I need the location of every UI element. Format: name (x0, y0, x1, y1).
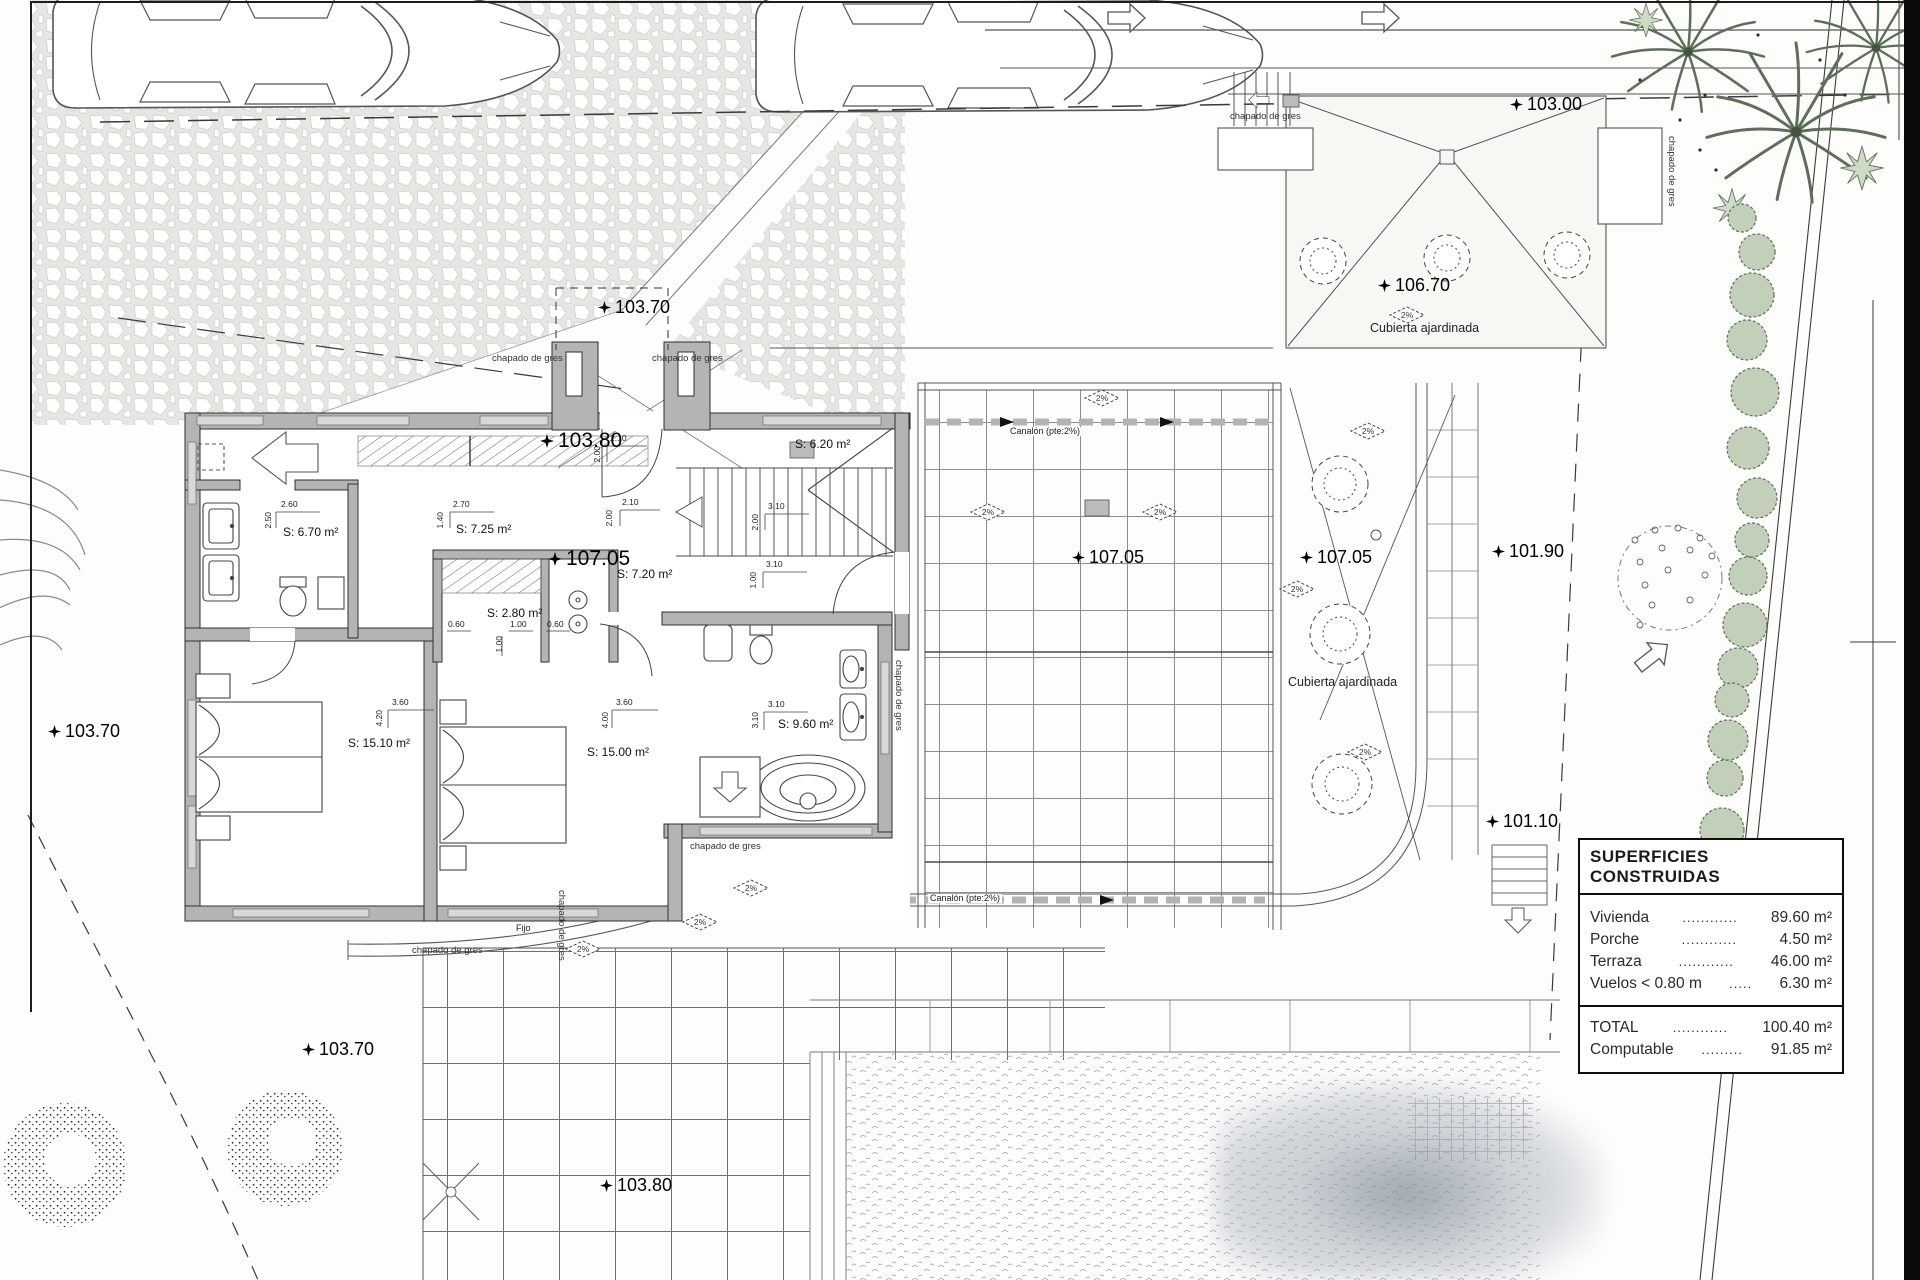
dimension-label: 2.50 (264, 512, 273, 529)
side-structure (1598, 128, 1662, 224)
dimension-label: 0.60 (547, 620, 564, 629)
dimension-label: 2.60 (281, 500, 298, 509)
dimension-label: 1.00 (749, 572, 758, 589)
material-note: chapado de gres (492, 354, 563, 364)
elevation-marker: 106.70 (1378, 276, 1450, 294)
dimension-label: 3.10 (768, 502, 785, 511)
dimension-label: 1.00 (510, 620, 527, 629)
table-row: Vivienda ............ 89.60 m² (1590, 909, 1832, 927)
pool-reflection-blur-2 (1300, 1130, 1520, 1260)
survey-point-icon (598, 301, 611, 314)
dimension-label: 3.60 (616, 698, 633, 707)
pool-steps (810, 1052, 846, 1280)
elevation-marker: 107.05 (1300, 548, 1372, 566)
survey-point-icon (1300, 551, 1313, 564)
slope-arrow: 2% (682, 913, 718, 931)
survey-point-icon (1072, 551, 1085, 564)
survey-point-icon (1492, 545, 1505, 558)
toilet-main (750, 625, 772, 664)
elevation-marker: 107.05 (548, 548, 630, 569)
toilet-small (280, 577, 306, 616)
elevation-marker: 101.90 (1492, 542, 1564, 560)
elevation-marker: 103.70 (598, 298, 670, 316)
dimension-label: 2.00 (593, 446, 602, 463)
dimension-label: 3.60 (392, 698, 409, 707)
material-note: chapado de gres (412, 946, 483, 956)
room-area-label: S: 6.20 m² (795, 438, 850, 450)
floor-plan-sheet: 103.00 103.70 103.70 103.70 103.80 103.8… (0, 0, 1920, 1280)
survey-point-icon (600, 1179, 613, 1192)
dimension-label: 3.10 (768, 700, 785, 709)
side-roof-garden (1290, 383, 1478, 906)
bidet (704, 625, 732, 661)
table-row: Vuelos < 0.80 m ..... 6.30 m² (1590, 975, 1832, 993)
material-note: chapado de gres (1667, 136, 1677, 207)
slope-arrow: 2% (733, 879, 769, 897)
left-palm (0, 470, 85, 650)
material-note: chapado de gres (690, 842, 761, 852)
room-area-label: S: 2.80 m² (487, 607, 542, 619)
material-note: chapado de gres (1230, 112, 1301, 122)
table-row: Computable ......... 91.85 m² (1590, 1041, 1832, 1059)
room-area-label: S: 15.00 m² (587, 746, 649, 758)
gutter-note: Canalón (pte:2%) (928, 894, 1002, 903)
bathtub (751, 755, 865, 821)
roof-garden-note: Cubierta ajardinada (1288, 676, 1397, 689)
room-area-label: S: 9.60 m² (778, 718, 833, 730)
shower (700, 757, 760, 817)
survey-point-icon (548, 552, 562, 566)
room-area-label: S: 6.70 m² (283, 526, 338, 538)
room-area-label: S: 7.20 m² (617, 568, 672, 580)
dimension-label: 1.00 (495, 636, 504, 653)
slope-arrow: 2% (1350, 422, 1386, 440)
material-note: chapado de gres (894, 660, 904, 731)
slope-arrow: 2% (1389, 306, 1425, 324)
dimension-label: 2.00 (605, 510, 614, 527)
elevation-marker: 107.05 (1072, 548, 1144, 566)
areas-table-totals: TOTAL ............ 100.40 m² Computable … (1580, 1007, 1842, 1072)
dimension-label: 3.10 (751, 712, 760, 729)
dimension-label: 3.10 (766, 560, 783, 569)
dimension-label: 4.20 (375, 710, 384, 727)
dimension-label: 2.00 (751, 514, 760, 531)
survey-point-icon (302, 1043, 315, 1056)
material-note: chapado de gres (652, 354, 723, 364)
dimension-label: 2.10 (622, 498, 639, 507)
slope-arrow: 2% (1279, 580, 1315, 598)
elevation-marker: 103.80 (600, 1176, 672, 1194)
areas-table: SUPERFICIES CONSTRUIDAS Vivienda .......… (1578, 838, 1844, 1074)
slope-arrow: 2% (970, 503, 1006, 521)
survey-point-icon (540, 434, 554, 448)
slope-arrow: 2% (565, 940, 601, 958)
areas-table-rows: Vivienda ............ 89.60 m² Porche ..… (1580, 895, 1842, 1007)
site-plan-linework (0, 0, 1920, 1280)
fixed-glazing-note: Fijo (516, 924, 531, 933)
areas-table-title: SUPERFICIES CONSTRUIDAS (1580, 840, 1842, 895)
slope-arrow: 2% (1347, 743, 1383, 761)
survey-point-icon (1486, 815, 1499, 828)
elevation-marker: 103.00 (1510, 95, 1582, 113)
table-row: TOTAL ............ 100.40 m² (1590, 1019, 1832, 1037)
dimension-label: 1.40 (436, 512, 445, 529)
survey-point-icon (1510, 98, 1523, 111)
dimension-label: 2.70 (453, 500, 470, 509)
elevation-marker: 103.70 (48, 722, 120, 740)
hedge-row (1697, 204, 1779, 899)
slope-arrow: 2% (1142, 503, 1178, 521)
sinks-main-bath (840, 650, 866, 740)
survey-point-icon (48, 725, 61, 738)
room-area-label: S: 15.10 m² (348, 737, 410, 749)
ground-cover (3, 1090, 343, 1227)
closet-hatch (442, 559, 541, 593)
elevation-marker: 101.10 (1486, 812, 1558, 830)
gutter-note: Canalón (pte:2%) (1008, 427, 1082, 436)
cabinet (318, 577, 344, 609)
room-area-label: S: 7.25 m² (456, 523, 511, 535)
lower-stairs (1492, 845, 1547, 933)
elevation-marker: 103.70 (302, 1040, 374, 1058)
dimension-label: 4.00 (601, 712, 610, 729)
dimension-label: 2.10 (610, 434, 627, 443)
table-row: Terraza ............ 46.00 m² (1590, 953, 1832, 971)
table-row: Porche ............ 4.50 m² (1590, 931, 1832, 949)
slope-arrow: 2% (1084, 389, 1120, 407)
survey-point-icon (1378, 279, 1391, 292)
round-planter (1618, 525, 1722, 630)
dimension-label: 0.60 (448, 620, 465, 629)
